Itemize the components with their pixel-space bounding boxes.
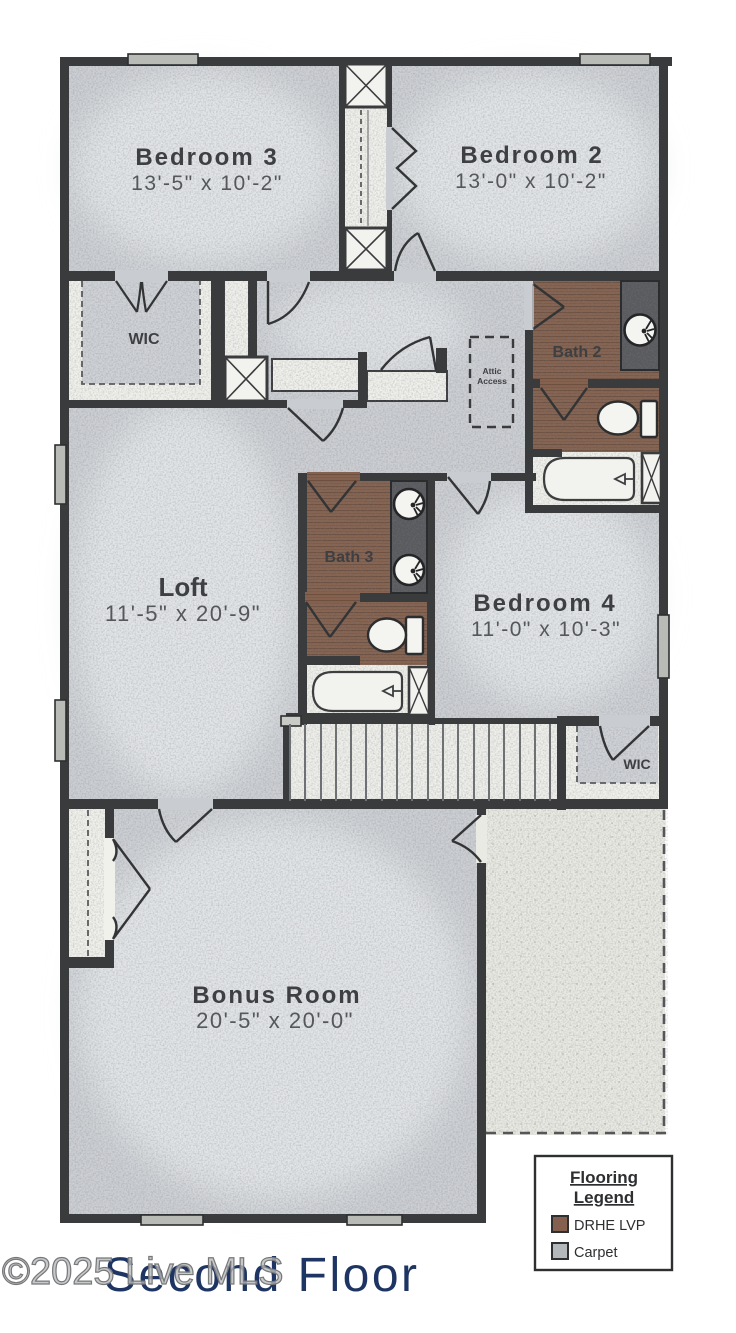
svg-text:Legend: Legend	[574, 1188, 634, 1207]
svg-text:©2025 Live MLS: ©2025 Live MLS	[2, 1251, 284, 1293]
svg-text:Flooring: Flooring	[570, 1168, 638, 1187]
svg-text:Bedroom 4: Bedroom 4	[473, 590, 616, 617]
svg-text:Bonus Room: Bonus Room	[192, 982, 361, 1009]
svg-text:WIC: WIC	[128, 331, 160, 348]
svg-text:Loft: Loft	[158, 572, 207, 602]
svg-text:11'-0" x 10'-3": 11'-0" x 10'-3"	[471, 618, 621, 641]
svg-text:DRHE LVP: DRHE LVP	[574, 1218, 645, 1234]
svg-text:WIC: WIC	[623, 756, 650, 772]
svg-text:13'-0" x 10'-2": 13'-0" x 10'-2"	[455, 170, 607, 193]
svg-text:Bedroom 3: Bedroom 3	[135, 144, 278, 171]
svg-text:13'-5" x 10'-2": 13'-5" x 10'-2"	[131, 172, 283, 195]
svg-text:Bath 2: Bath 2	[553, 344, 602, 361]
svg-text:Attic: Attic	[483, 366, 502, 376]
svg-text:20'-5" x 20'-0": 20'-5" x 20'-0"	[196, 1008, 354, 1033]
svg-text:Carpet: Carpet	[574, 1245, 618, 1261]
svg-text:Access: Access	[477, 376, 507, 386]
svg-text:Bedroom 2: Bedroom 2	[460, 142, 603, 169]
svg-text:Bath 3: Bath 3	[325, 549, 374, 566]
svg-text:11'-5" x 20'-9": 11'-5" x 20'-9"	[105, 601, 261, 626]
